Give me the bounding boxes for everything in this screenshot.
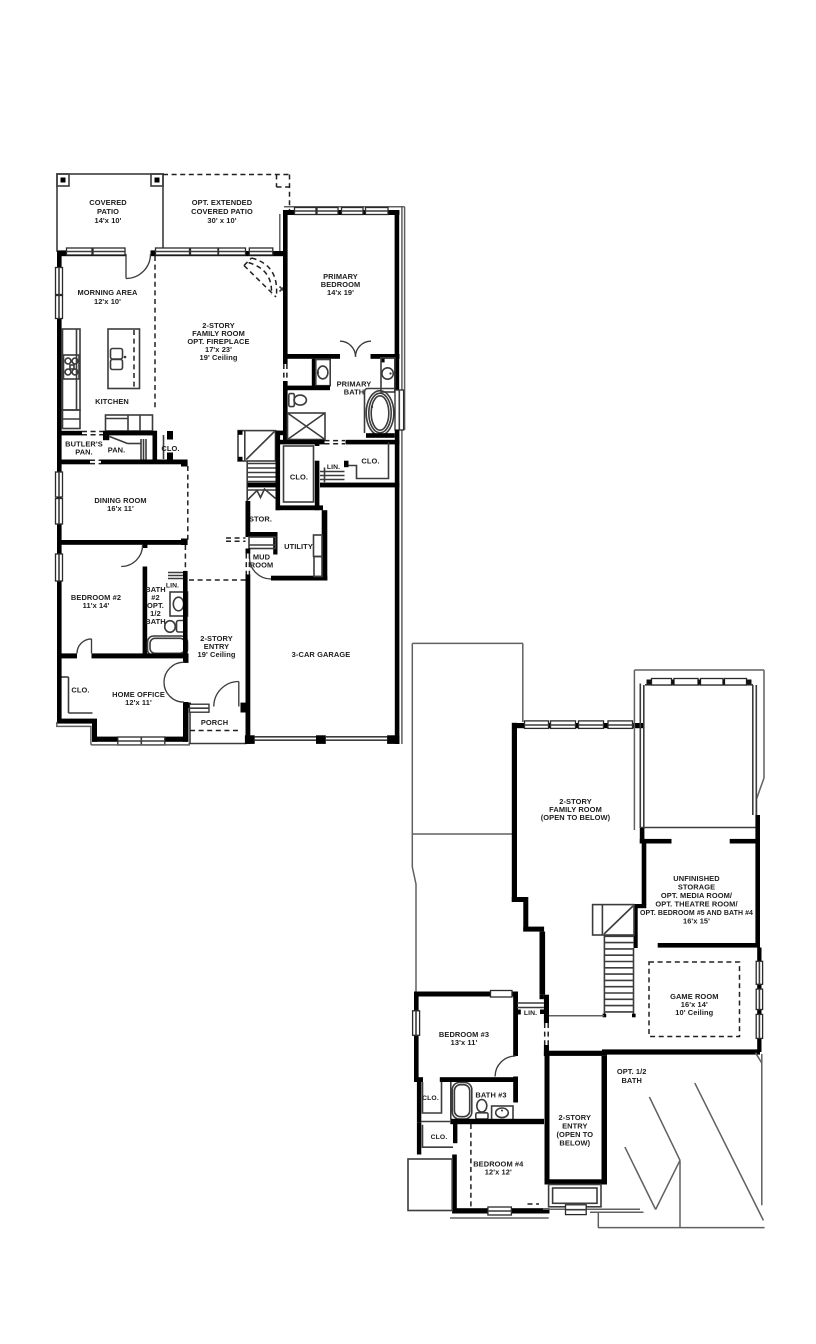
svg-text:PAN.: PAN. [75,448,93,457]
svg-text:LIN.: LIN. [166,583,179,590]
svg-text:PATIO: PATIO [97,207,119,216]
svg-text:14'x 19': 14'x 19' [327,288,354,297]
svg-text:10' Ceiling: 10' Ceiling [675,1008,713,1017]
svg-text:KITCHEN: KITCHEN [95,397,129,406]
svg-text:CLO.: CLO. [290,473,308,482]
svg-text:MORNING AREA: MORNING AREA [77,288,138,297]
svg-text:16'x 15': 16'x 15' [683,917,710,926]
svg-text:LIN.: LIN. [327,464,340,471]
svg-text:19' Ceiling: 19' Ceiling [197,650,235,659]
svg-text:BATH #3: BATH #3 [475,1091,506,1100]
svg-text:OPT. 1/2: OPT. 1/2 [617,1067,647,1076]
svg-text:19' Ceiling: 19' Ceiling [199,353,237,362]
svg-text:BELOW): BELOW) [559,1139,590,1148]
svg-text:CLO.: CLO. [361,457,379,466]
svg-text:CLO.: CLO. [71,686,89,695]
svg-text:LIN.: LIN. [524,1010,537,1017]
svg-text:OPT. EXTENDED: OPT. EXTENDED [192,198,253,207]
svg-text:16'x 11': 16'x 11' [107,504,134,513]
svg-text:(OPEN TO BELOW): (OPEN TO BELOW) [541,813,611,822]
svg-text:13'x 11': 13'x 11' [451,1038,478,1047]
svg-text:COVERED PATIO: COVERED PATIO [191,207,253,216]
svg-text:3-CAR GARAGE: 3-CAR GARAGE [292,650,351,659]
svg-text:COVERED: COVERED [89,198,127,207]
svg-text:PORCH: PORCH [201,718,228,727]
svg-text:11'x 14': 11'x 14' [83,601,110,610]
svg-text:CLO.: CLO. [422,1095,439,1102]
svg-text:CLO.: CLO. [431,1134,448,1141]
svg-text:UTILITY: UTILITY [284,542,313,551]
svg-text:12'x 10': 12'x 10' [94,297,121,306]
svg-text:PAN.: PAN. [108,446,126,455]
svg-text:30' x 10': 30' x 10' [207,216,236,225]
svg-text:CLO.: CLO. [161,444,179,453]
svg-text:BATH: BATH [621,1076,642,1085]
svg-text:12'x 11': 12'x 11' [125,698,152,707]
svg-text:STOR.: STOR. [249,515,272,524]
svg-text:BATH: BATH [145,617,166,626]
svg-text:BATH: BATH [344,388,365,397]
svg-text:12'x 12': 12'x 12' [485,1168,512,1177]
svg-text:14'x 10': 14'x 10' [94,216,121,225]
svg-text:ROOM: ROOM [250,561,274,570]
